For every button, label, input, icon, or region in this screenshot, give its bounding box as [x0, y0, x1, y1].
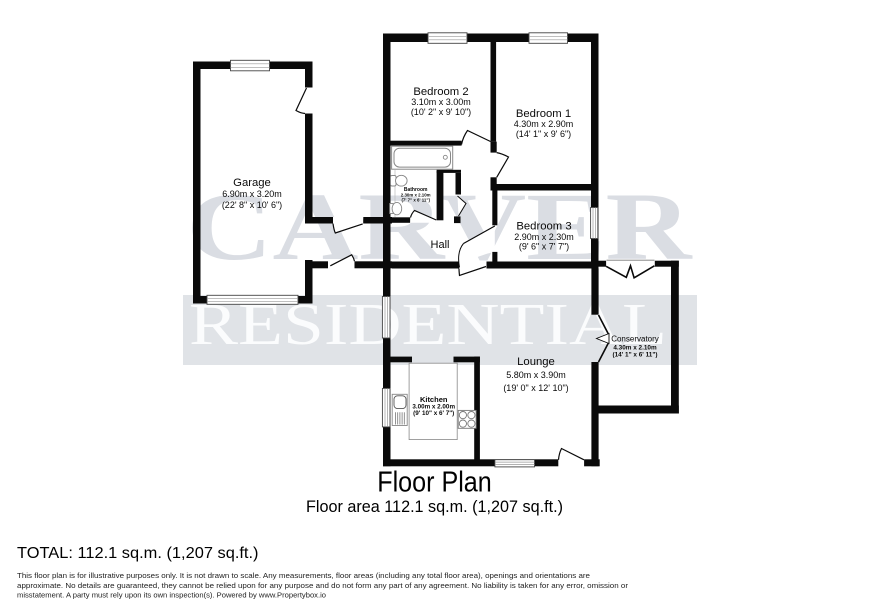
svg-text:Conservatory: Conservatory — [611, 335, 659, 344]
svg-text:approximate. No details are gu: approximate. No details are guaranteed, … — [17, 582, 629, 590]
svg-text:misstatement. A party must rel: misstatement. A party must rely upon its… — [17, 592, 326, 600]
svg-text:This floor plan is for illustr: This floor plan is for illustrative purp… — [17, 572, 590, 580]
svg-text:Kitchen: Kitchen — [420, 395, 448, 404]
svg-text:(9' 10" x 6' 7"): (9' 10" x 6' 7") — [413, 410, 454, 417]
svg-text:(14' 1" x 6' 11"): (14' 1" x 6' 11") — [613, 351, 658, 358]
svg-text:(10' 2" x 9' 10"): (10' 2" x 9' 10") — [411, 107, 471, 117]
svg-text:Garage: Garage — [233, 177, 271, 189]
svg-text:TOTAL: 112.1 sq.m. (1,207 sq.f: TOTAL: 112.1 sq.m. (1,207 sq.ft.) — [17, 545, 259, 562]
svg-text:5.80m x 3.90m: 5.80m x 3.90m — [506, 370, 566, 380]
svg-text:Floor Plan: Floor Plan — [377, 467, 492, 499]
svg-text:Floor area 112.1 sq.m. (1,207: Floor area 112.1 sq.m. (1,207 sq.ft.) — [306, 498, 563, 516]
svg-text:Lounge: Lounge — [517, 356, 555, 368]
svg-text:4.30m x 2.90m: 4.30m x 2.90m — [514, 119, 574, 129]
svg-text:(9' 6" x 7' 7"): (9' 6" x 7' 7") — [519, 242, 569, 252]
svg-text:(19' 0" x 12' 10"): (19' 0" x 12' 10") — [503, 383, 568, 393]
svg-text:4.30m x 2.10m: 4.30m x 2.10m — [613, 344, 657, 351]
svg-text:(22' 8" x 10' 6"): (22' 8" x 10' 6") — [222, 200, 282, 210]
svg-text:6.90m x 3.20m: 6.90m x 3.20m — [222, 189, 282, 199]
svg-text:(7' 7" x 6' 11"): (7' 7" x 6' 11") — [401, 197, 430, 202]
svg-text:2.90m x 2.30m: 2.90m x 2.30m — [514, 232, 574, 242]
svg-text:Hall: Hall — [431, 239, 450, 251]
svg-text:3.10m x 3.00m: 3.10m x 3.00m — [411, 97, 471, 107]
svg-text:Bedroom 3: Bedroom 3 — [516, 221, 571, 233]
svg-text:(14' 1" x 9' 6"): (14' 1" x 9' 6") — [516, 129, 571, 139]
